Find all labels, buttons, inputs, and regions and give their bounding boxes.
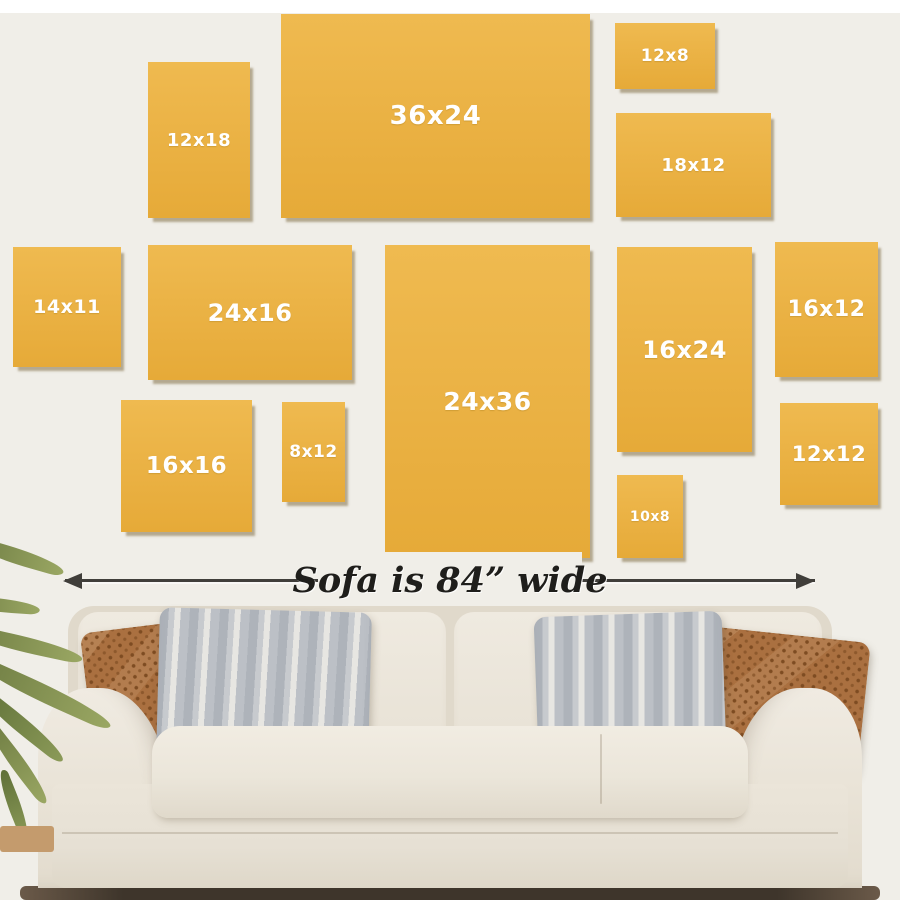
sofa-seat-cushion	[152, 726, 748, 818]
size-panel-12x18: 12x18	[148, 62, 250, 218]
floor-patch	[0, 826, 54, 852]
size-panel-16x16: 16x16	[121, 400, 252, 532]
base-seam	[62, 832, 838, 834]
sofa-width-label: Sofa is 84” wide	[318, 552, 582, 608]
panel-size-label: 16x12	[788, 297, 866, 322]
top-margin-strip	[0, 0, 900, 13]
panel-size-label: 16x24	[642, 336, 727, 364]
size-panel-12x8: 12x8	[615, 23, 715, 89]
panel-size-label: 36x24	[390, 101, 482, 131]
sofa-width-annotation: Sofa is 84” wide	[0, 552, 900, 612]
panel-size-label: 16x16	[146, 453, 227, 479]
size-panel-16x24: 16x24	[617, 247, 752, 452]
panel-size-label: 24x36	[443, 387, 531, 416]
panel-size-label: 10x8	[630, 509, 670, 525]
seat-seam	[600, 734, 602, 804]
panel-size-label: 12x18	[167, 130, 231, 151]
panel-size-label: 18x12	[661, 155, 725, 176]
panel-size-label: 12x12	[792, 442, 867, 466]
panel-size-label: 12x8	[641, 46, 689, 66]
panel-size-label: 24x16	[208, 299, 293, 327]
size-panel-14x11: 14x11	[13, 247, 121, 367]
panel-size-label: 8x12	[289, 442, 337, 462]
size-panel-8x12: 8x12	[282, 402, 345, 502]
size-panel-16x12: 16x12	[775, 242, 878, 377]
size-panel-18x12: 18x12	[616, 113, 771, 217]
panel-size-label: 14x11	[33, 296, 101, 318]
wall-art-size-guide: 12x1836x2412x818x1214x1124x1624x3616x241…	[0, 0, 900, 900]
size-panel-12x12: 12x12	[780, 403, 878, 505]
arrow-left-icon	[63, 573, 82, 589]
size-panel-24x16: 24x16	[148, 245, 352, 380]
arrow-right-icon	[796, 573, 815, 589]
floor-shadow	[20, 886, 880, 900]
size-panel-36x24: 36x24	[281, 14, 590, 218]
size-panel-24x36: 24x36	[385, 245, 590, 558]
size-panel-10x8: 10x8	[617, 475, 683, 558]
